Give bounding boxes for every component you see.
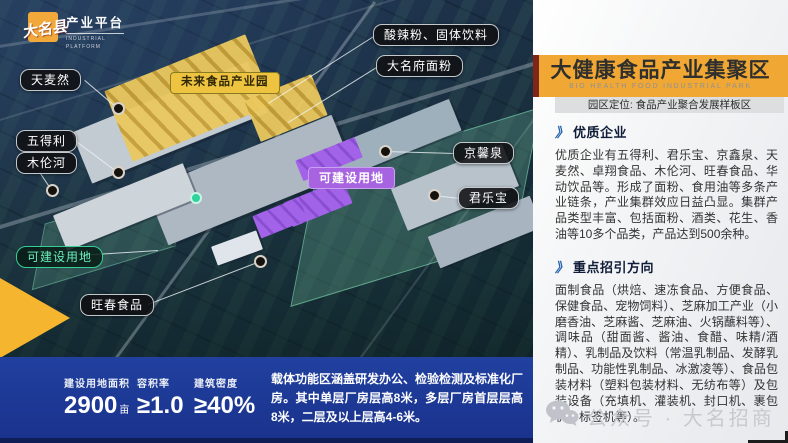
map-label-jingxinquan: 京馨泉 [453, 142, 514, 164]
slide: 天麦然 未来食品产业园 酸辣粉、固体饮料 大名府面粉 五得利 木伦河 京馨泉 可… [0, 0, 788, 443]
stat-plot-ratio: 容积率 ≥1.0 [137, 375, 186, 418]
wechat-icon [545, 399, 579, 433]
anchor-dot [428, 189, 441, 202]
map-label-wangchun: 旺春食品 [80, 294, 154, 316]
map-label-junlebao: 君乐宝 [458, 187, 519, 209]
quality-enterprises-text: 优质企业有五得利、君乐宝、京鑫泉、天麦然、卓翔食品、木伦河、旺春食品、华动饮品等… [555, 148, 778, 243]
map-label-future-park: 未来食品产业园 [170, 72, 280, 94]
panel-body: 》 优质企业 优质企业有五得利、君乐宝、京鑫泉、天麦然、卓翔食品、木伦河、旺春食… [555, 122, 778, 439]
stat-number: ≥40% [194, 392, 255, 419]
chevron-icon: 》 [555, 257, 568, 276]
park-aerial-map: 天麦然 未来食品产业园 酸辣粉、固体饮料 大名府面粉 五得利 木伦河 京馨泉 可… [0, 0, 533, 357]
stat-label: 容积率 [137, 375, 186, 390]
logo-county-name: 大名县 [23, 15, 68, 42]
anchor-dot [46, 184, 59, 197]
panel-title-en: BIG HEALTH FOOD INDUSTRIAL PARK [533, 83, 788, 90]
section-heading-key-recruitment: 》 重点招引方向 [555, 257, 778, 276]
stat-building-density: 建筑密度 ≥40% [194, 375, 257, 418]
title-banner: 大健康食品产业集聚区 BIG HEALTH FOOD INDUSTRIAL PA… [533, 55, 788, 97]
section-title: 优质企业 [573, 122, 627, 141]
anchor-dot [379, 145, 392, 158]
anchor-dot [112, 102, 125, 115]
label-connector [148, 261, 260, 305]
section-title: 重点招引方向 [573, 257, 654, 276]
wechat-footer: 公众号 · 大名招商 [545, 399, 775, 433]
park-positioning: 园区定位: 食品产业聚合发展样板区 [555, 97, 784, 113]
stat-number: 2900 [64, 392, 117, 419]
red-accent-strip [533, 55, 539, 97]
logo-text-block: 产业平台 INDUSTRIAL PLATFORM [66, 12, 124, 51]
carrier-function-note: 载体功能区涵盖研发办公、检验检测及标准化厂房。其中单层厂房层高8米，多层厂房首层… [271, 370, 523, 428]
logo-platform-label: 产业平台 [66, 12, 124, 34]
map-label-buildable-purple: 可建设用地 [308, 167, 395, 189]
county-logo: 大名县 产业平台 INDUSTRIAL PLATFORM [28, 12, 124, 51]
panel-title: 大健康食品产业集聚区 [533, 59, 788, 82]
map-label-damingfu: 大名府面粉 [376, 55, 463, 77]
label-connector [268, 35, 376, 104]
map-label-buildable-green: 可建设用地 [16, 246, 103, 268]
stat-unit: 亩 [119, 405, 129, 416]
green-anchor-dot [190, 192, 202, 204]
map-label-wudeli: 五得利 [16, 130, 77, 152]
stat-value: ≥1.0 [137, 394, 186, 418]
stats-bar: 建设用地面积 2900亩 容积率 ≥1.0 建筑密度 ≥40% 载体功能区涵盖研… [0, 357, 533, 443]
stat-number: ≥1.0 [137, 392, 184, 419]
anchor-dot [254, 255, 267, 268]
map-label-mulunhe: 木伦河 [16, 152, 77, 174]
wechat-account-text: 公众号 · 大名招商 [587, 402, 775, 431]
stat-label: 建筑密度 [194, 375, 257, 390]
stat-value: 2900亩 [64, 394, 130, 418]
logo-platform-en: INDUSTRIAL PLATFORM [66, 36, 116, 51]
section-heading-quality-enterprises: 》 优质企业 [555, 122, 778, 141]
stat-label: 建设用地面积 [64, 375, 130, 390]
yellow-triangle-decoration [0, 278, 70, 357]
corner-frame-mark [748, 431, 788, 443]
map-label-suanlafen: 酸辣粉、固体饮料 [373, 24, 499, 46]
map-label-tianmairan: 天麦然 [20, 69, 81, 91]
stat-land-area: 建设用地面积 2900亩 [64, 375, 130, 418]
chevron-icon: 》 [555, 122, 568, 141]
info-panel: 大健康食品产业集聚区 BIG HEALTH FOOD INDUSTRIAL PA… [533, 0, 788, 443]
anchor-dot [112, 166, 125, 179]
logo-yellow-square: 大名县 [28, 12, 58, 42]
stat-value: ≥40% [194, 394, 257, 418]
